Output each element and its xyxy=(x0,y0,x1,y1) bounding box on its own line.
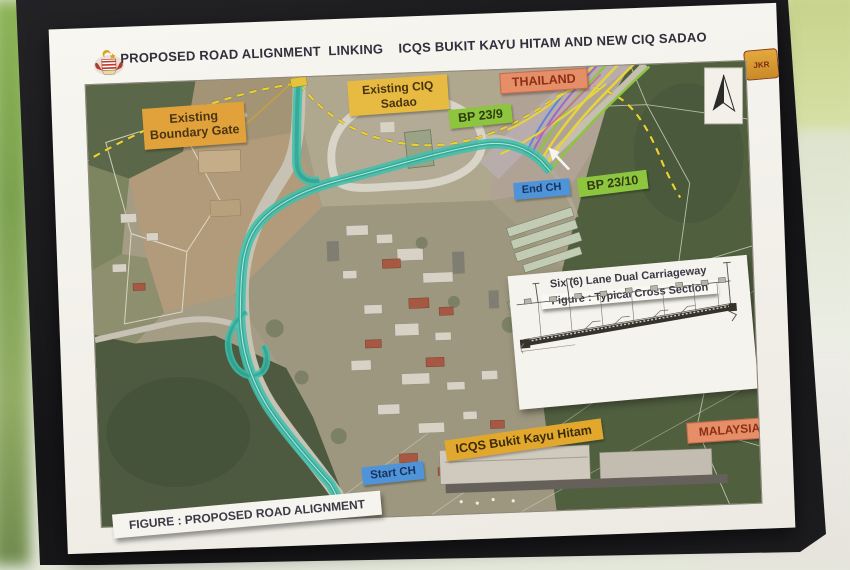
poster: PROPOSED ROAD ALIGNMENT LINKING ICQS BUK… xyxy=(49,3,796,554)
jkr-logo-text: JKR xyxy=(753,59,770,69)
label-existing-ciq-sadao: Existing CIQ Sadao xyxy=(347,74,449,116)
label-existing-boundary-gate: Existing Boundary Gate xyxy=(142,102,247,150)
cross-section-inset: Six (6) Lane Dual Carriageway xyxy=(508,255,759,410)
aerial-map: Existing Boundary Gate Existing CIQ Sada… xyxy=(85,60,763,528)
north-arrow-icon xyxy=(704,68,742,124)
jkr-logo: JKR xyxy=(743,48,780,81)
